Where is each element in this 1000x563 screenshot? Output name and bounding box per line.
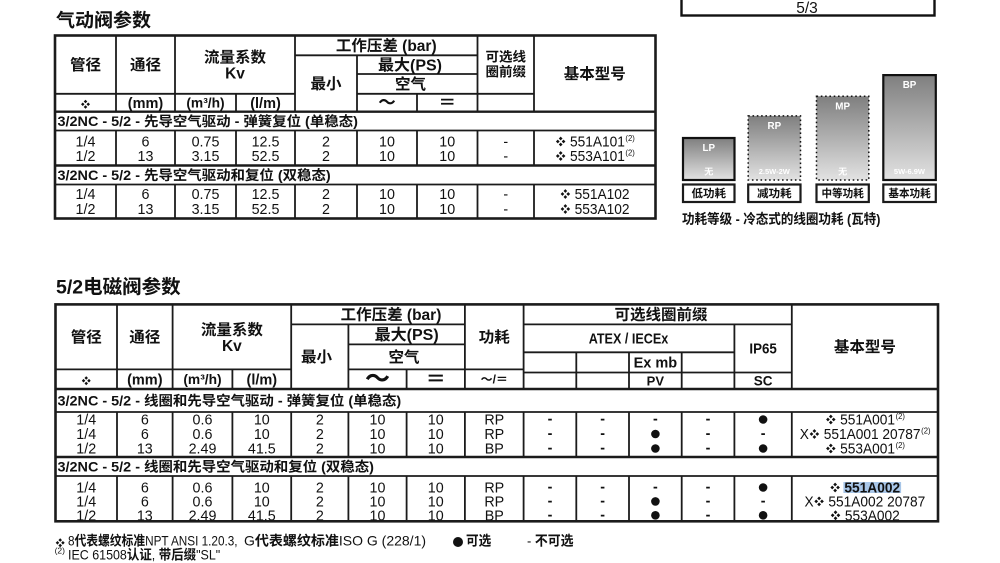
svg-text:(2): (2) (921, 426, 931, 435)
svg-text:553A101: 553A101 (570, 148, 625, 164)
svg-text:-: - (706, 507, 711, 523)
svg-text:13: 13 (138, 202, 154, 218)
svg-text:(2): (2) (896, 441, 906, 450)
svg-text:3/2NC - 5/2 -: 3/2NC - 5/2 - (58, 394, 141, 410)
svg-text:SC: SC (754, 374, 773, 389)
svg-text:0.75: 0.75 (192, 187, 220, 203)
svg-text:): ) (326, 168, 331, 184)
svg-text:): ) (353, 114, 358, 130)
svg-text:3.15: 3.15 (192, 202, 220, 218)
svg-text:BP: BP (903, 80, 917, 91)
svg-text:-: - (736, 211, 740, 227)
svg-text:2: 2 (322, 187, 330, 203)
svg-text:X: X (804, 493, 814, 509)
svg-text:-: - (503, 202, 508, 218)
svg-text:13: 13 (138, 149, 154, 165)
svg-text:-: - (527, 533, 531, 549)
svg-text:(bar): (bar) (402, 38, 436, 55)
svg-text:): ) (396, 394, 401, 410)
svg-text:3/2NC - 5/2 -: 3/2NC - 5/2 - (58, 114, 141, 130)
svg-text:1/2: 1/2 (76, 442, 96, 458)
svg-text:Kv: Kv (222, 338, 242, 355)
svg-text:RP: RP (768, 121, 782, 132)
svg-text:52.5: 52.5 (252, 202, 280, 218)
svg-text:10: 10 (370, 442, 386, 458)
svg-text:(m³/h): (m³/h) (183, 372, 221, 387)
svg-text:1/2: 1/2 (76, 202, 96, 218)
svg-text:2: 2 (316, 508, 324, 524)
svg-text:(: ( (321, 460, 326, 476)
svg-text:(l/m): (l/m) (250, 96, 281, 112)
svg-text:2: 2 (316, 442, 324, 458)
svg-text:10: 10 (439, 202, 455, 218)
svg-text:5W-6.9W: 5W-6.9W (894, 167, 926, 176)
svg-text:2.49: 2.49 (189, 508, 217, 524)
svg-text:(: ( (305, 114, 310, 130)
svg-text:(2): (2) (625, 148, 635, 157)
svg-text:10: 10 (439, 187, 455, 203)
svg-text:): ) (876, 211, 880, 227)
svg-text:-: - (278, 394, 283, 410)
svg-text:1/4: 1/4 (76, 187, 96, 203)
svg-text:-: - (548, 507, 553, 523)
svg-text:551A102: 551A102 (575, 186, 630, 202)
svg-text:ISO G (228/1): ISO G (228/1) (339, 533, 426, 549)
svg-text:-: - (761, 426, 766, 442)
svg-text:5/3: 5/3 (796, 0, 818, 17)
svg-text:-: - (706, 441, 711, 457)
svg-text:Ex mb: Ex mb (634, 356, 678, 372)
svg-text:13: 13 (137, 508, 153, 524)
svg-text:10: 10 (428, 442, 444, 458)
svg-text:LP: LP (702, 143, 715, 154)
svg-text:-: - (503, 149, 508, 165)
svg-text:-: - (548, 441, 553, 457)
svg-text:(: ( (348, 394, 353, 410)
svg-text:-: - (600, 507, 605, 523)
svg-text:41.5: 41.5 (248, 508, 276, 524)
svg-text:X: X (800, 426, 810, 442)
svg-text:2.49: 2.49 (189, 442, 217, 458)
svg-text:10: 10 (379, 187, 395, 203)
svg-text:10: 10 (379, 202, 395, 218)
svg-text:(: ( (847, 211, 852, 227)
svg-text:Kv: Kv (225, 66, 245, 83)
svg-text:13: 13 (137, 442, 153, 458)
svg-text:6: 6 (142, 187, 150, 203)
svg-text:2.5W-2W: 2.5W-2W (759, 167, 791, 176)
svg-text:1/2: 1/2 (76, 149, 96, 165)
svg-text:-: - (761, 494, 766, 510)
svg-text:(PS): (PS) (407, 327, 439, 344)
svg-text:BP: BP (485, 508, 504, 524)
svg-text:-: - (235, 114, 240, 130)
svg-text:2: 2 (322, 202, 330, 218)
svg-text:"SL": "SL" (196, 547, 220, 563)
svg-text:3/2NC - 5/2 -: 3/2NC - 5/2 - (58, 168, 141, 184)
svg-text:41.5: 41.5 (248, 442, 276, 458)
svg-text:-: - (600, 441, 605, 457)
svg-text:(m³/h): (m³/h) (186, 96, 224, 111)
svg-text:2: 2 (322, 149, 330, 165)
svg-text:5/2: 5/2 (56, 277, 83, 299)
svg-text:): ) (369, 460, 374, 476)
svg-text:G: G (244, 533, 255, 549)
svg-text:(bar): (bar) (407, 307, 441, 324)
svg-text:10: 10 (428, 508, 444, 524)
svg-text:(mm): (mm) (128, 96, 164, 112)
svg-text:PV: PV (647, 373, 665, 388)
svg-text:553A001: 553A001 (840, 440, 895, 456)
svg-text:(2): (2) (625, 134, 635, 143)
svg-text:3/2NC - 5/2 -: 3/2NC - 5/2 - (58, 460, 141, 476)
svg-text:MP: MP (835, 101, 850, 112)
svg-text:(PS): (PS) (410, 57, 442, 74)
svg-text:3.15: 3.15 (192, 149, 220, 165)
svg-text:52.5: 52.5 (252, 149, 280, 165)
svg-text:553A102: 553A102 (575, 201, 630, 217)
svg-text:(2): (2) (55, 546, 66, 556)
svg-text:(mm): (mm) (127, 372, 163, 388)
svg-text:553A002: 553A002 (845, 507, 900, 523)
svg-text:NPT ANSI 1.20.3,: NPT ANSI 1.20.3, (145, 533, 237, 549)
svg-text:(l/m): (l/m) (247, 372, 278, 388)
svg-text:-: - (653, 412, 658, 428)
svg-text:10: 10 (439, 149, 455, 165)
svg-text:10: 10 (379, 149, 395, 165)
svg-text:12.5: 12.5 (252, 187, 280, 203)
svg-text:(2): (2) (896, 412, 906, 421)
svg-text:1/2: 1/2 (76, 508, 96, 524)
svg-text:,: , (152, 547, 155, 563)
svg-text:10: 10 (370, 508, 386, 524)
svg-text:(: ( (278, 168, 283, 184)
svg-text:IP65: IP65 (749, 340, 777, 357)
svg-text:ATEX / IECEx: ATEX / IECEx (589, 331, 669, 347)
svg-text:-: - (503, 187, 508, 203)
svg-text:-: - (653, 480, 658, 496)
svg-text:IEC 61508: IEC 61508 (68, 547, 127, 563)
svg-text:BP: BP (485, 442, 504, 458)
